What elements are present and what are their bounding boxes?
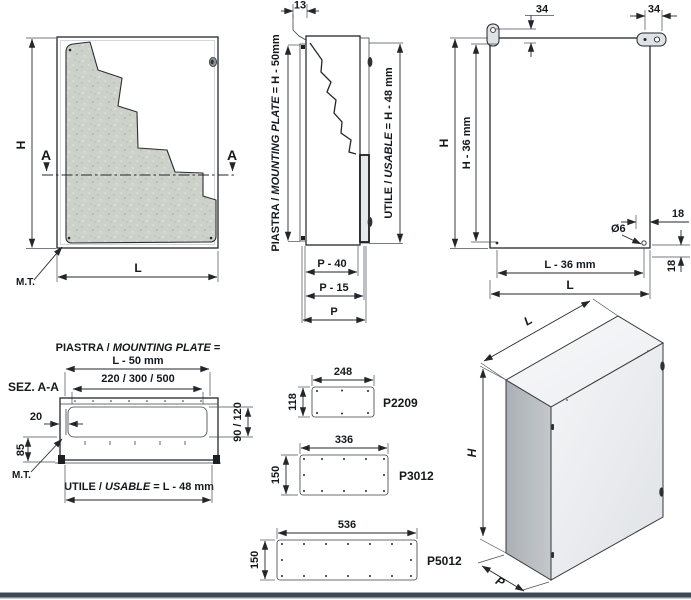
section-usable-italic: USABLE: [105, 481, 151, 493]
wall-gap-20-dimension: 20: [30, 411, 83, 424]
hole-18-top-dimension: 18: [621, 208, 689, 229]
p3012-height-dimension: 150: [270, 455, 298, 495]
p5012-height-dimension: 150: [249, 540, 275, 580]
front-height-dimension: H: [14, 38, 56, 249]
section-mt-label: M.T.: [12, 470, 31, 481]
iso-side-face: [506, 380, 551, 580]
section-plate-suffix: =: [211, 342, 220, 354]
hole-diameter-label: Ø6: [611, 223, 626, 235]
gland-plate-p3012: 336 150 P3012: [270, 434, 434, 495]
section-title: SEZ. A-A: [8, 380, 59, 394]
depth-label: P: [330, 306, 337, 318]
side-plate-suffix: = H - 50mm: [270, 34, 282, 96]
section-view: SEZ. A-A PIASTRA / MOUNTING PLATE = L - …: [8, 342, 253, 503]
hole-18-side-dimension: 18: [652, 230, 690, 272]
cutout-heights-label: 90 / 120: [232, 402, 244, 442]
section-plate-ticks: [85, 441, 185, 445]
p5012-width-label: 536: [338, 519, 356, 531]
p3012-model-label: P3012: [399, 469, 434, 483]
side-door-section: [360, 155, 369, 242]
section-foot-left: [58, 455, 65, 464]
cutout-width-dimension: 220 / 300 / 500: [72, 373, 203, 404]
front-mt-label: M.T.: [16, 277, 35, 288]
p2209-width-dimension: 248: [312, 366, 374, 386]
p5012-width-dimension: 536: [277, 519, 417, 539]
iso-top-screw-left: [566, 399, 568, 401]
plate-stud-bottom: [301, 236, 305, 240]
rear-depth-85-dimension: 85: [15, 437, 57, 462]
side-usable-italic: USABLE: [383, 132, 395, 178]
side-plate-height-label: PIASTRA / MOUNTING PLATE = H - 50mm: [270, 34, 282, 252]
corner-hole-right: [642, 241, 646, 245]
flange-13-label: 13: [294, 0, 306, 12]
section-usable-cavity: [68, 407, 207, 437]
side-usable-height-label: UTILE / USABLE = H - 48 mm: [383, 67, 395, 219]
section-foot-right: [213, 455, 220, 464]
rear-panel: [490, 38, 650, 248]
p5012-shine: [343, 551, 354, 564]
drawing-page: A A H L M.T.: [0, 0, 691, 600]
wall-bracket-left: [487, 24, 499, 46]
depth-minus-15-label: P - 15: [319, 282, 348, 294]
plate-stud-top: [301, 45, 305, 49]
break-line: [310, 43, 356, 154]
bracket-34-left-dimension: 34: [496, 4, 554, 58]
section-plate-dim-line2: L - 50 mm: [112, 355, 163, 367]
bracket-34-right-label: 34: [648, 4, 661, 16]
p3012-width-label: 336: [335, 434, 353, 446]
front-mt-callout: M.T.: [16, 247, 62, 288]
p3012-width-dimension: 336: [300, 434, 388, 454]
p5012-height-label: 150: [249, 551, 261, 569]
section-plate-italic: MOUNTING PLATE: [113, 342, 212, 354]
side-usable-suffix: = H - 48 mm: [383, 67, 395, 132]
section-usable-suffix: = L - 48 mm: [150, 481, 214, 493]
rear-height-36-dimension: H - 36 mm: [461, 44, 497, 242]
section-usable-dimension: UTILE / USABLE = L - 48 mm: [64, 465, 214, 503]
gland-plate-p2209: 248 118 P2209: [287, 366, 418, 417]
wall-gap-20-label: 20: [30, 411, 42, 423]
mounting-plate: [66, 42, 216, 243]
depth-minus-40-label: P - 40: [317, 258, 346, 270]
rear-depth-85-label: 85: [15, 444, 27, 456]
gland-plate-p5012: 536 150 P5012: [249, 519, 462, 580]
p5012-model-label: P5012: [427, 554, 462, 568]
rear-width-dimension: L: [490, 250, 650, 299]
rear-height-label: H: [437, 139, 451, 148]
front-width-label: L: [134, 261, 141, 275]
rear-height-36-label: H - 36 mm: [461, 116, 473, 169]
window-bottom-edge: [0, 593, 691, 600]
section-marker-left-label: A: [41, 147, 51, 163]
section-plate-prefix: PIASTRA /: [56, 342, 113, 354]
hole-diameter-callout: Ø6: [611, 223, 641, 244]
iso-view: L H P: [465, 299, 665, 591]
p2209-height-dimension: 118: [287, 387, 310, 417]
flange-13-dimension: 13: [281, 0, 319, 18]
side-usable-prefix: UTILE /: [383, 178, 395, 219]
side-plate-height-dimension: PIASTRA / MOUNTING PLATE = H - 50mm: [270, 34, 300, 252]
hole-18-top-label: 18: [672, 208, 684, 220]
front-width-dimension: L: [57, 251, 218, 282]
p2209-shine: [340, 394, 349, 405]
rear-view: 34 34 H H - 36 mm 18 Ø6: [437, 4, 690, 300]
rear-width-36-label: L - 36 mm: [544, 259, 595, 271]
p2209-model-label: P2209: [383, 396, 418, 410]
hole-18-side-label: 18: [666, 260, 678, 272]
section-plate-dim-line1: PIASTRA / MOUNTING PLATE =: [56, 342, 221, 354]
iso-depth-label: P: [493, 574, 508, 591]
section-usable-prefix: UTILE /: [64, 481, 105, 493]
depth-dimensions: P - 40 P - 15 P: [302, 246, 366, 323]
door-knob-icon: [209, 57, 216, 66]
side-mounting-plate: [300, 44, 306, 241]
side-body: [306, 36, 360, 245]
front-view: A A H L M.T.: [14, 37, 237, 288]
side-plate-prefix: PIASTRA /: [270, 195, 282, 252]
iso-width-label: L: [521, 313, 534, 329]
side-plate-italic: MOUNTING PLATE: [270, 96, 282, 195]
side-view: 13 PIASTRA / MOUNTING PLATE = H - 50mm U…: [270, 0, 403, 323]
iso-height-label: H: [465, 448, 479, 457]
p2209-height-label: 118: [287, 393, 299, 411]
section-marker-right-label: A: [227, 147, 237, 163]
section-usable-label: UTILE / USABLE = L - 48 mm: [64, 481, 214, 493]
p2209-width-label: 248: [334, 366, 352, 378]
technical-drawing: A A H L M.T.: [0, 0, 691, 600]
cutout-height-dimension: 90 / 120: [209, 402, 253, 442]
rear-width-36-dimension: L - 36 mm: [497, 248, 644, 278]
rear-width-label: L: [566, 278, 573, 292]
bracket-34-right-dimension: 34: [630, 4, 677, 32]
wall-bracket-right: [637, 33, 666, 46]
iso-top-screw-right: [647, 350, 649, 352]
section-marker-left: A: [41, 147, 51, 171]
p3012-height-label: 150: [270, 466, 282, 484]
front-height-label: H: [14, 141, 28, 150]
p3012-shine: [340, 466, 351, 479]
cutout-widths-label: 220 / 300 / 500: [101, 373, 174, 385]
section-front-screws: [74, 400, 202, 402]
rear-flange: [293, 14, 306, 40]
iso-height-dimension: H: [465, 366, 508, 554]
section-marker-right: A: [227, 147, 237, 171]
side-usable-height-dimension: UTILE / USABLE = H - 48 mm: [369, 43, 403, 244]
bracket-34-left-label: 34: [536, 4, 549, 16]
